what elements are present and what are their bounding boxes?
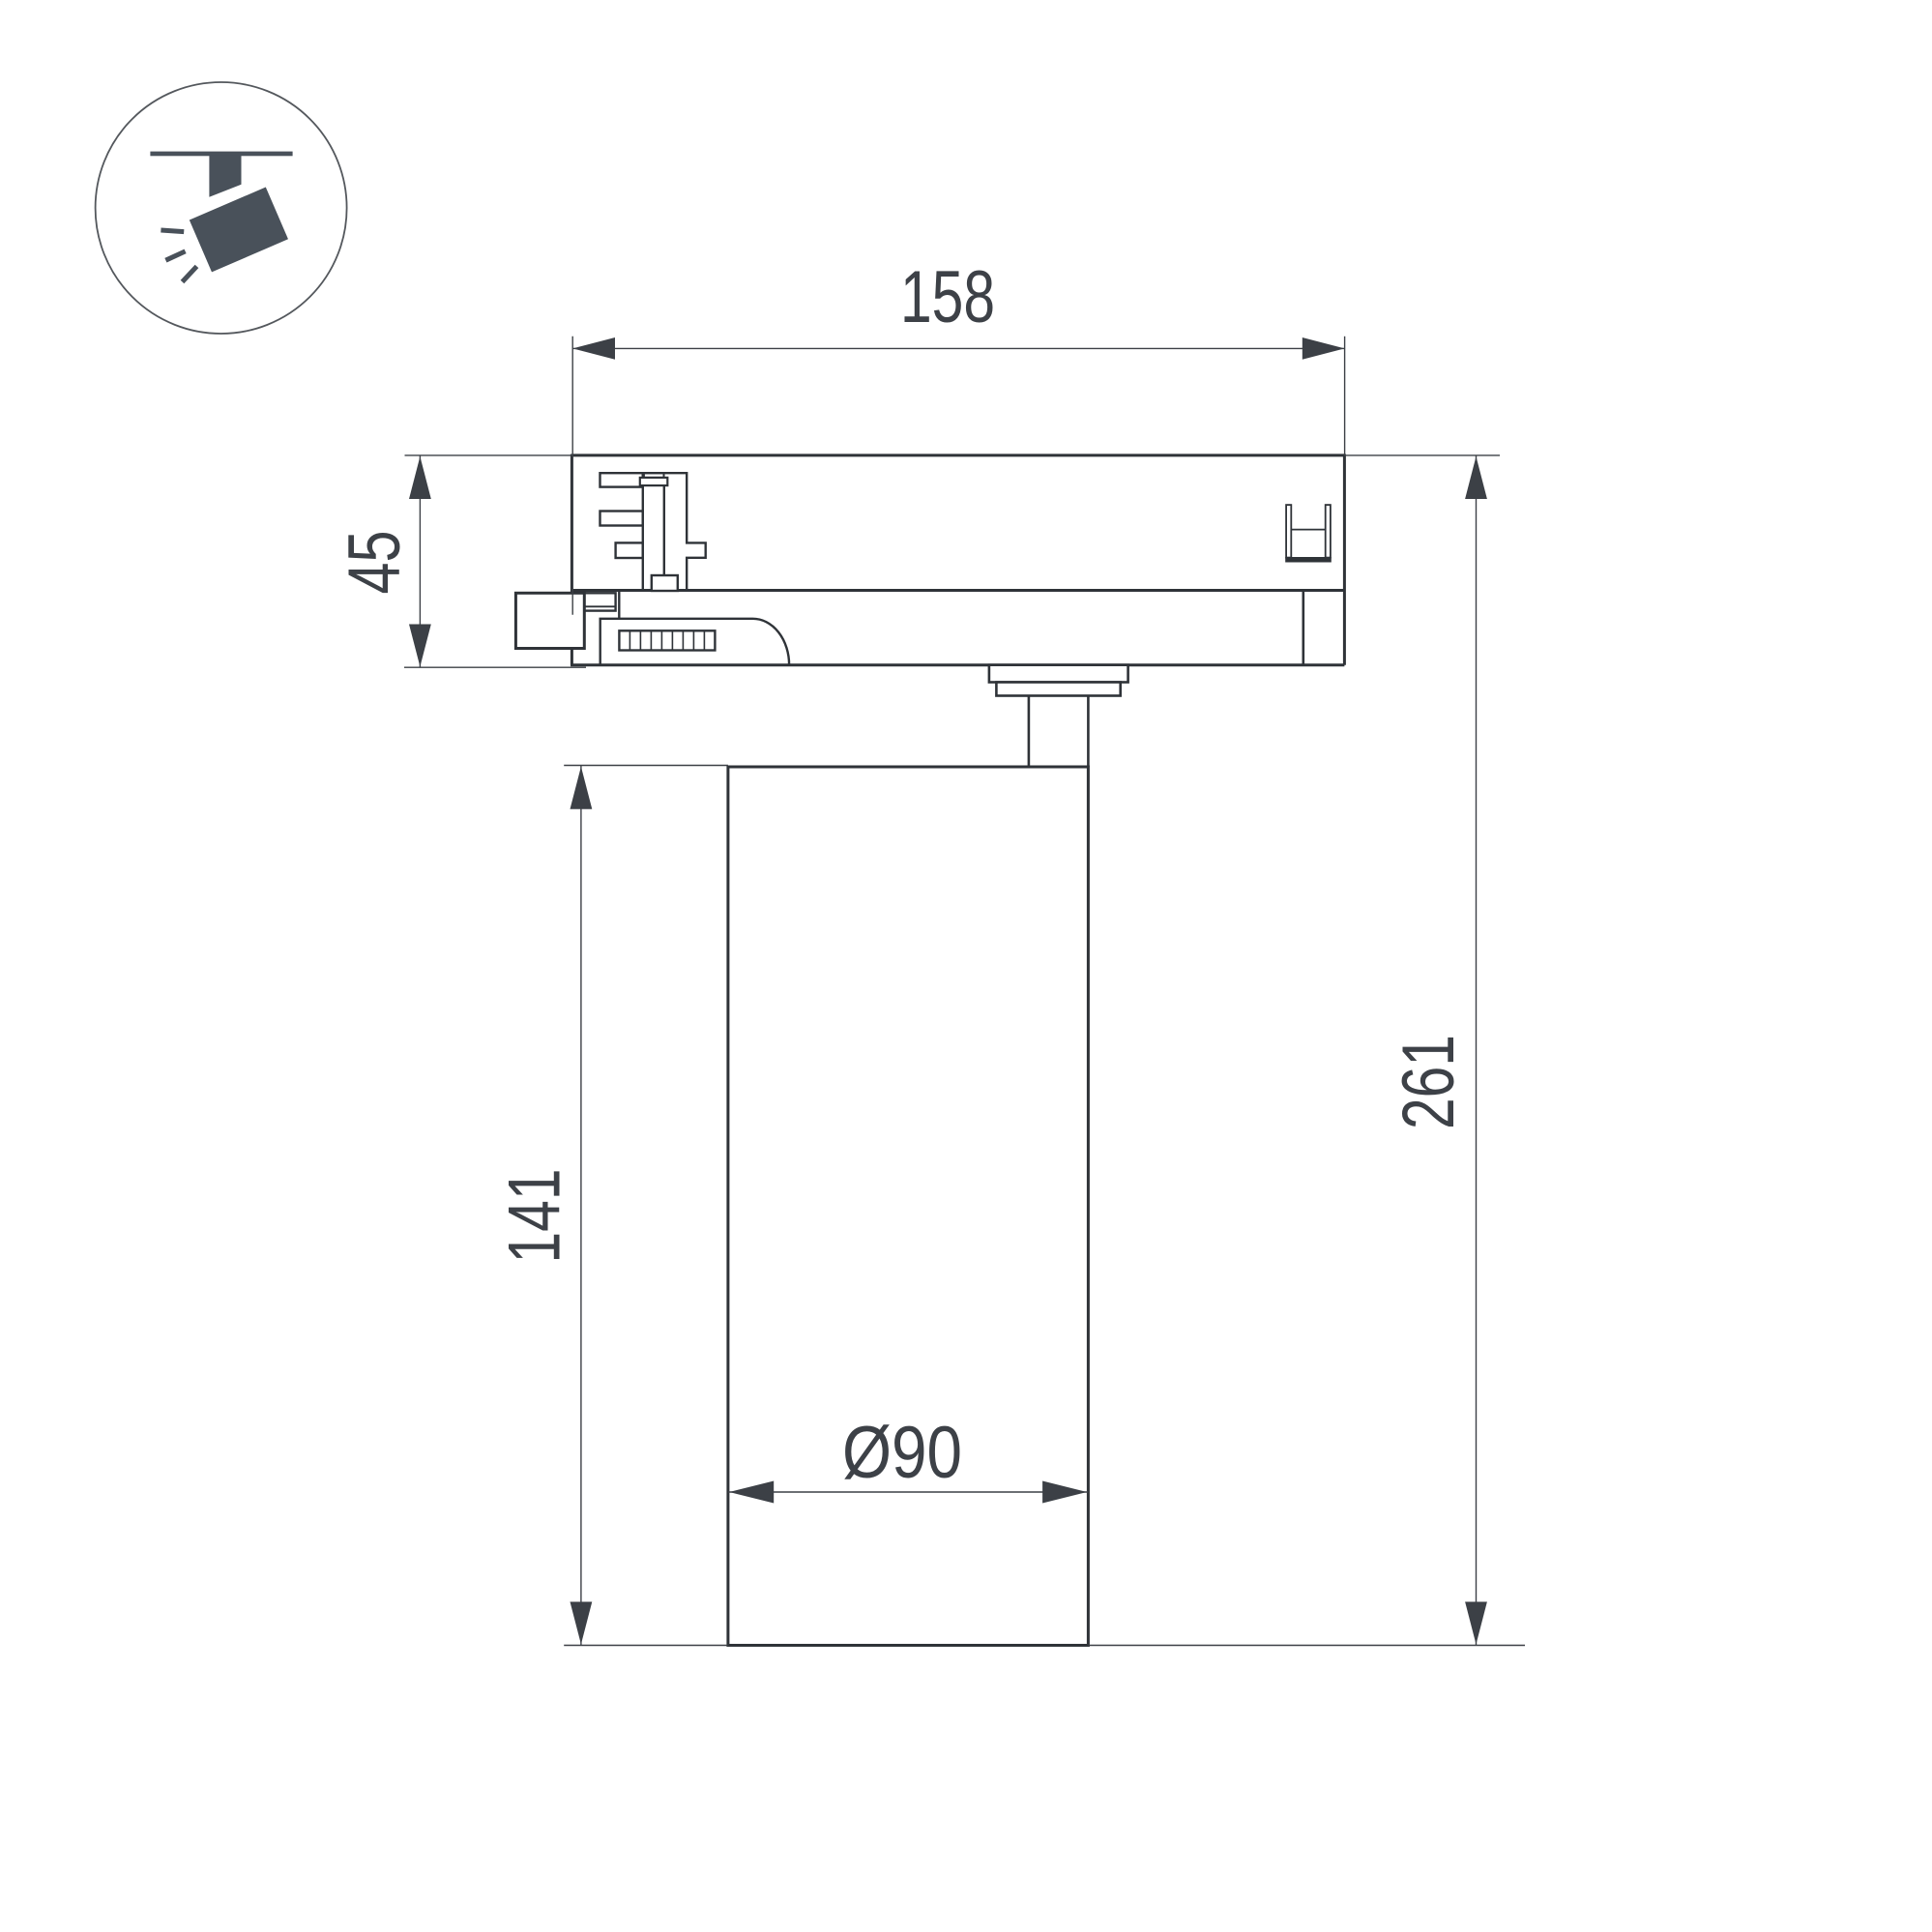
svg-text:45: 45 [334,531,416,595]
svg-text:158: 158 [900,256,995,338]
svg-text:141: 141 [494,1169,576,1264]
svg-text:Ø90: Ø90 [842,1412,962,1494]
svg-text:261: 261 [1388,1035,1470,1129]
